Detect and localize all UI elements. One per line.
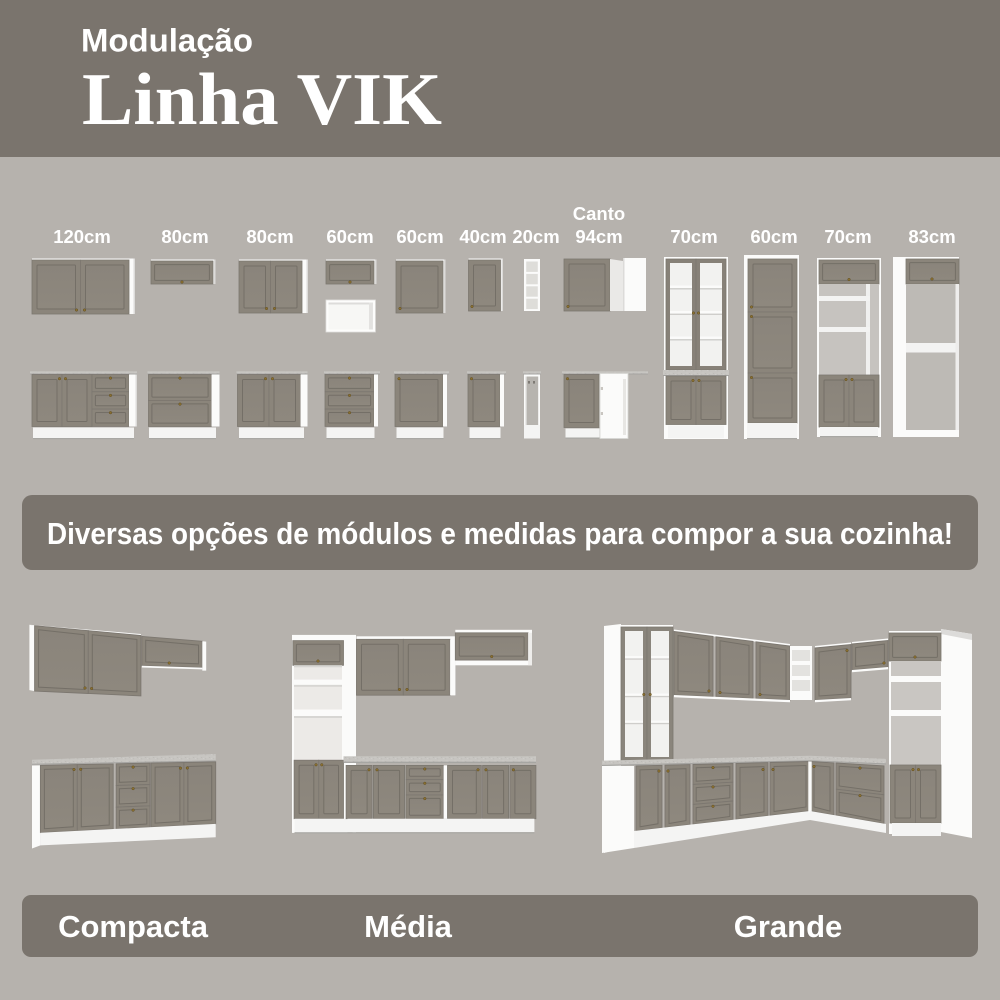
svg-text:60cm: 60cm [750, 226, 797, 247]
svg-text:70cm: 70cm [670, 226, 717, 247]
svg-text:80cm: 80cm [246, 226, 293, 247]
svg-text:Diversas opções de módulos e m: Diversas opções de módulos e medidas par… [47, 516, 953, 551]
svg-text:Grande: Grande [734, 909, 843, 944]
svg-text:70cm: 70cm [824, 226, 871, 247]
svg-text:83cm: 83cm [908, 226, 955, 247]
svg-text:20cm: 20cm [512, 226, 559, 247]
svg-text:Média: Média [364, 909, 453, 944]
svg-text:Linha VIK: Linha VIK [82, 59, 442, 141]
svg-text:Compacta: Compacta [58, 909, 209, 944]
svg-text:Canto: Canto [573, 203, 625, 224]
svg-text:60cm: 60cm [326, 226, 373, 247]
svg-text:Modulação: Modulação [81, 23, 253, 59]
svg-text:80cm: 80cm [161, 226, 208, 247]
svg-text:60cm: 60cm [396, 226, 443, 247]
svg-text:94cm: 94cm [575, 226, 622, 247]
svg-text:120cm: 120cm [53, 226, 111, 247]
svg-text:40cm: 40cm [459, 226, 506, 247]
